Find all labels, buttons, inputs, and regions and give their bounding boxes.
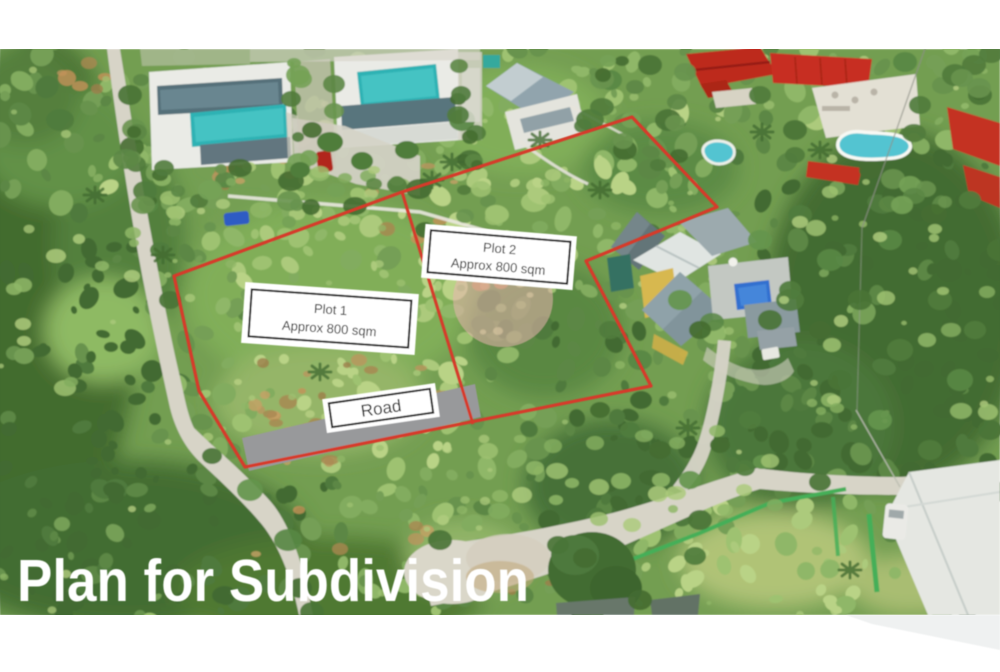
svg-text:Plan for Subdivision: Plan for Subdivision <box>17 548 529 614</box>
svg-text:Plot 1: Plot 1 <box>313 301 347 318</box>
svg-text:Plot 2: Plot 2 <box>483 240 517 258</box>
